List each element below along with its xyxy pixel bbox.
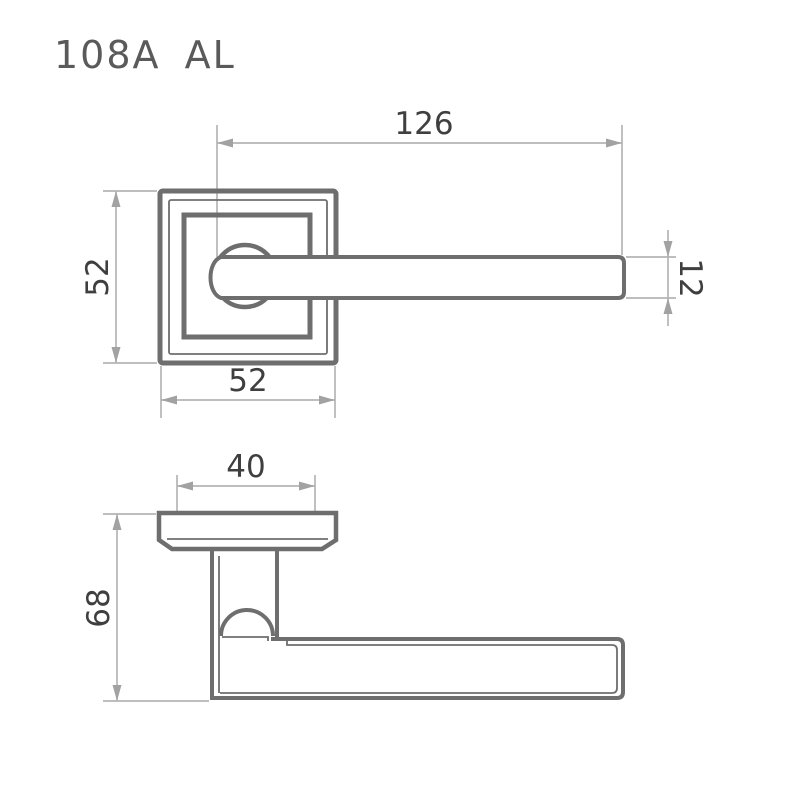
arrowhead-up [112,191,121,207]
lever-front [211,257,625,298]
grip-outline [212,639,623,698]
dim-rose-face-width-label: 40 [226,449,265,485]
arrowhead-up [664,298,673,314]
front-view: 126 52 52 1 [80,106,708,418]
dim-rose-width-label: 52 [228,363,267,399]
arrowhead-down [664,241,673,257]
side-view: 40 68 [81,449,623,701]
arrowhead-down [113,685,122,701]
arrowhead-right [299,482,315,491]
drawing-title: 108A AL [54,33,236,77]
dim-handle-length-label: 126 [394,106,453,142]
arrowhead-up [113,514,122,530]
dim-overall-depth-label: 68 [81,588,117,627]
arrowhead-left [177,482,193,491]
side-view-dimensions: 40 68 [81,449,315,701]
rosette-side [159,513,336,549]
arrowhead-down [112,347,121,363]
arrowhead-left [161,396,177,405]
technical-drawing-page: 108A AL 126 52 [0,0,800,800]
dim-lever-thickness-label: 12 [672,258,708,297]
arrowhead-left [217,139,233,148]
lever-bar [211,257,625,298]
door-handle-drawing: 108A AL 126 52 [0,0,800,800]
grip-hump-arc [221,610,273,636]
grip-hump-chord-line [222,637,268,641]
arrowhead-right [606,139,622,148]
dim-rose-height-label: 52 [80,257,116,296]
grip-inner-line [220,641,617,693]
rosette-side-plate [159,513,336,549]
arrowhead-right [319,396,335,405]
lever-side [212,551,623,700]
